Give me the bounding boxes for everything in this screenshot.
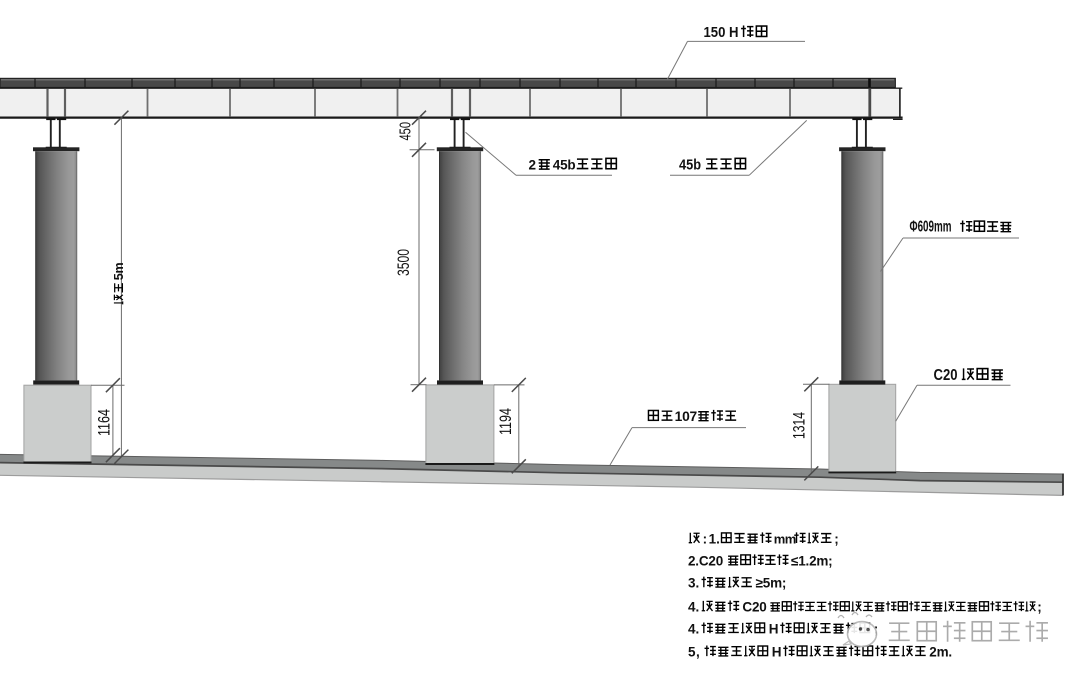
svg-text:C20: C20 [934,367,958,384]
svg-text:;: ; [834,531,839,546]
svg-text:4.: 4. [688,622,699,637]
svg-text:,: , [696,645,700,660]
svg-text:1.: 1. [709,531,720,546]
svg-text:≤1.2m;: ≤1.2m; [791,553,832,568]
svg-text::: : [703,531,708,546]
svg-text:2.C20: 2.C20 [688,553,723,568]
svg-text:107: 107 [675,409,698,424]
svg-text:150 H: 150 H [704,24,739,41]
svg-text:3500: 3500 [394,249,413,276]
svg-text:H: H [772,645,782,660]
svg-text:450: 450 [397,122,414,141]
svg-text:≥5m;: ≥5m; [756,576,787,591]
svg-text:1194: 1194 [496,408,515,435]
svg-text:Φ609mm: Φ609mm [910,219,952,236]
svg-text:2: 2 [529,157,537,172]
svg-text:1314: 1314 [790,412,809,439]
svg-text:45b: 45b [553,157,576,172]
svg-text:2m.: 2m. [929,645,952,660]
svg-text:H: H [769,622,779,637]
svg-text:5: 5 [688,645,696,660]
svg-text:3.: 3. [688,576,699,591]
svg-text:;: ; [1037,600,1042,615]
svg-text:5m: 5m [112,263,126,281]
svg-text:45b: 45b [679,156,701,173]
svg-text:4.: 4. [688,600,699,615]
svg-text:mm: mm [774,531,796,546]
svg-text:C20: C20 [742,600,766,615]
svg-text:1164: 1164 [95,409,114,436]
